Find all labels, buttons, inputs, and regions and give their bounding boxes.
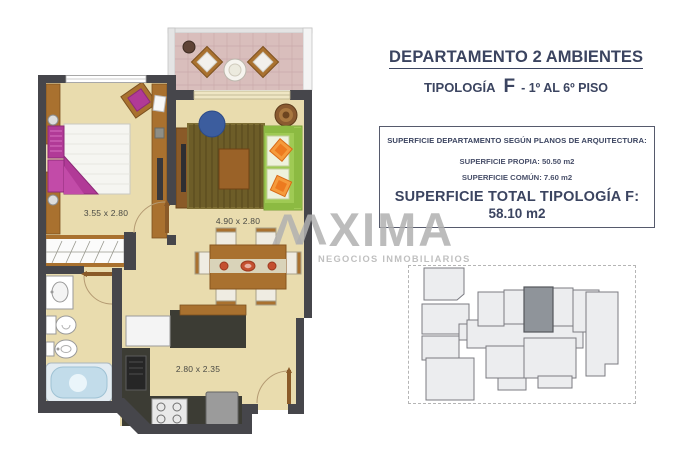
- surface-info-box: SUPERFICIE DEPARTAMENTO SEGÚN PLANOS DE …: [379, 126, 655, 228]
- sofa: [264, 126, 302, 210]
- surface-total-label: SUPERFICIE TOTAL TIPOLOGÍA F:: [380, 189, 654, 205]
- surface-heading: SUPERFICIE DEPARTAMENTO SEGÚN PLANOS DE …: [380, 136, 654, 145]
- oven: [126, 356, 146, 390]
- page-title: DEPARTAMENTO 2 AMBIENTES: [389, 48, 643, 69]
- balcony: [168, 28, 312, 90]
- plant: [275, 104, 297, 126]
- plant-pot: [183, 41, 195, 53]
- kitchen-dimension-label: 2.80 x 2.35: [166, 364, 230, 374]
- title-bold: 2 AMBIENTES: [533, 48, 643, 66]
- bidet: [46, 340, 77, 358]
- title-block: DEPARTAMENTO 2 AMBIENTES TIPOLOGÍAF- 1º …: [380, 48, 652, 98]
- bedroom-dimension-label: 3.55 x 2.80: [74, 208, 138, 218]
- surface-own: SUPERFICIE PROPIA: 50.50 m2: [380, 157, 654, 166]
- kitchen-counter-top: [170, 310, 246, 348]
- keyplan-highlighted-unit: [524, 287, 553, 332]
- title-main: DEPARTAMENTO: [389, 48, 528, 66]
- surface-common: SUPERFICIE COMÚN: 7.60 m2: [380, 173, 654, 182]
- flyer-canvas: 3.55 x 2.80 4.90 x 2.80 2.80 x 2.35 ΛΛ X…: [0, 0, 690, 450]
- surface-total-value: 58.10 m2: [380, 206, 654, 221]
- wall-lamp-top: [48, 115, 58, 125]
- stove: [152, 399, 187, 426]
- blue-pouf: [199, 111, 225, 137]
- subtitle-floors: - 1º AL 6º PISO: [521, 81, 608, 95]
- desk: [152, 84, 167, 238]
- page-subtitle: TIPOLOGÍAF- 1º AL 6º PISO: [380, 76, 652, 98]
- keyplan-box: [408, 265, 636, 404]
- toilet: [46, 316, 76, 334]
- bathtub: [46, 363, 112, 402]
- closet: [46, 235, 124, 267]
- living-dimension-label: 4.90 x 2.80: [206, 216, 270, 226]
- subtitle-type: F: [503, 76, 515, 97]
- tv: [181, 144, 186, 192]
- balcony-table: [224, 59, 246, 81]
- keyplan-drawing: [409, 266, 635, 403]
- fridge: [206, 392, 238, 425]
- wall-lamp-bottom: [48, 195, 58, 205]
- kitchen-sink-counter: [126, 316, 170, 346]
- keyplan-units: [422, 268, 618, 400]
- coffee-table: [219, 149, 249, 189]
- subtitle-label: TIPOLOGÍA: [424, 80, 496, 95]
- bathroom-sink: [46, 276, 73, 309]
